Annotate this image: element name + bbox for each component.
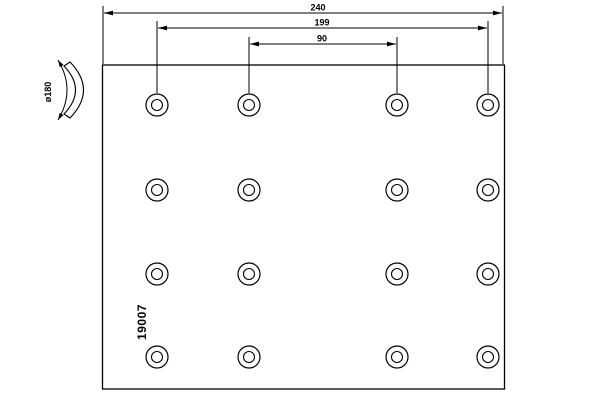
rivet-hole xyxy=(386,263,408,285)
rivet-hole-outer-circle xyxy=(477,94,499,116)
rivet-hole-outer-circle xyxy=(477,179,499,201)
rivet-hole xyxy=(477,94,499,116)
rivet-hole xyxy=(477,263,499,285)
brake-lining-technical-drawing: 240 199 90 ø180 19007 xyxy=(0,0,600,400)
dimension-outer-rivet-span: 199 xyxy=(157,18,488,94)
rivet-hole-grid xyxy=(146,94,499,368)
dimension-arrow-left xyxy=(250,42,259,47)
curved-profile-symbol: ø180 xyxy=(43,60,84,120)
rivet-hole-inner-circle xyxy=(483,100,494,111)
rivet-hole-inner-circle xyxy=(244,100,255,111)
dimension-arrow-right xyxy=(493,11,502,16)
rivet-hole-inner-circle xyxy=(152,100,163,111)
dimension-label-inner-rivet-span: 90 xyxy=(317,34,327,44)
rivet-hole-outer-circle xyxy=(238,346,260,368)
rivet-hole-outer-circle xyxy=(146,346,168,368)
rivet-hole-inner-circle xyxy=(244,185,255,196)
rivet-hole-outer-circle xyxy=(386,179,408,201)
part-number-label: 19007 xyxy=(135,304,149,340)
rivet-hole-outer-circle xyxy=(477,346,499,368)
dimension-arrow-right xyxy=(387,42,396,47)
dimension-arrow-left xyxy=(158,26,167,31)
rivet-hole xyxy=(477,346,499,368)
rivet-hole xyxy=(238,94,260,116)
rivet-hole-inner-circle xyxy=(392,185,403,196)
dimension-arrow-left xyxy=(104,11,113,16)
rivet-hole xyxy=(146,263,168,285)
rivet-hole-inner-circle xyxy=(392,100,403,111)
rivet-hole xyxy=(477,179,499,201)
rivet-hole-outer-circle xyxy=(238,179,260,201)
rivet-hole xyxy=(238,263,260,285)
rivet-hole-inner-circle xyxy=(392,352,403,363)
dimension-arrow-right xyxy=(478,26,487,31)
rivet-hole xyxy=(146,179,168,201)
rivet-hole xyxy=(238,179,260,201)
rivet-hole-outer-circle xyxy=(146,263,168,285)
rivet-hole-inner-circle xyxy=(152,185,163,196)
rivet-hole-inner-circle xyxy=(392,269,403,280)
rivet-hole-inner-circle xyxy=(244,269,255,280)
dimension-inner-rivet-span: 90 xyxy=(249,34,397,94)
rivet-hole-inner-circle xyxy=(483,269,494,280)
rivet-hole-outer-circle xyxy=(238,94,260,116)
rivet-hole-inner-circle xyxy=(152,269,163,280)
rivet-hole-outer-circle xyxy=(386,94,408,116)
rivet-hole xyxy=(386,94,408,116)
dimension-overall-length: 240 xyxy=(103,3,503,65)
curvature-arrow-arc xyxy=(58,60,67,120)
dimension-label-outer-rivet-span: 199 xyxy=(314,18,329,28)
rivet-hole xyxy=(238,346,260,368)
rivet-hole-outer-circle xyxy=(238,263,260,285)
rivet-hole-outer-circle xyxy=(386,263,408,285)
rivet-hole xyxy=(146,94,168,116)
curvature-arrow-head-bottom xyxy=(58,113,64,120)
rivet-hole xyxy=(386,346,408,368)
rivet-hole xyxy=(386,179,408,201)
rivet-hole-inner-circle xyxy=(483,352,494,363)
rivet-hole-outer-circle xyxy=(386,346,408,368)
rivet-hole-outer-circle xyxy=(146,179,168,201)
rivet-hole-inner-circle xyxy=(244,352,255,363)
rivet-hole-inner-circle xyxy=(152,352,163,363)
rivet-hole xyxy=(146,346,168,368)
curvature-arrow-head-top xyxy=(58,60,64,67)
curve-diameter-label: ø180 xyxy=(43,82,53,103)
dimension-label-overall-length: 240 xyxy=(310,3,325,13)
lining-plate-outline xyxy=(103,65,505,389)
rivet-hole-inner-circle xyxy=(483,185,494,196)
rivet-hole-outer-circle xyxy=(146,94,168,116)
rivet-hole-outer-circle xyxy=(477,263,499,285)
